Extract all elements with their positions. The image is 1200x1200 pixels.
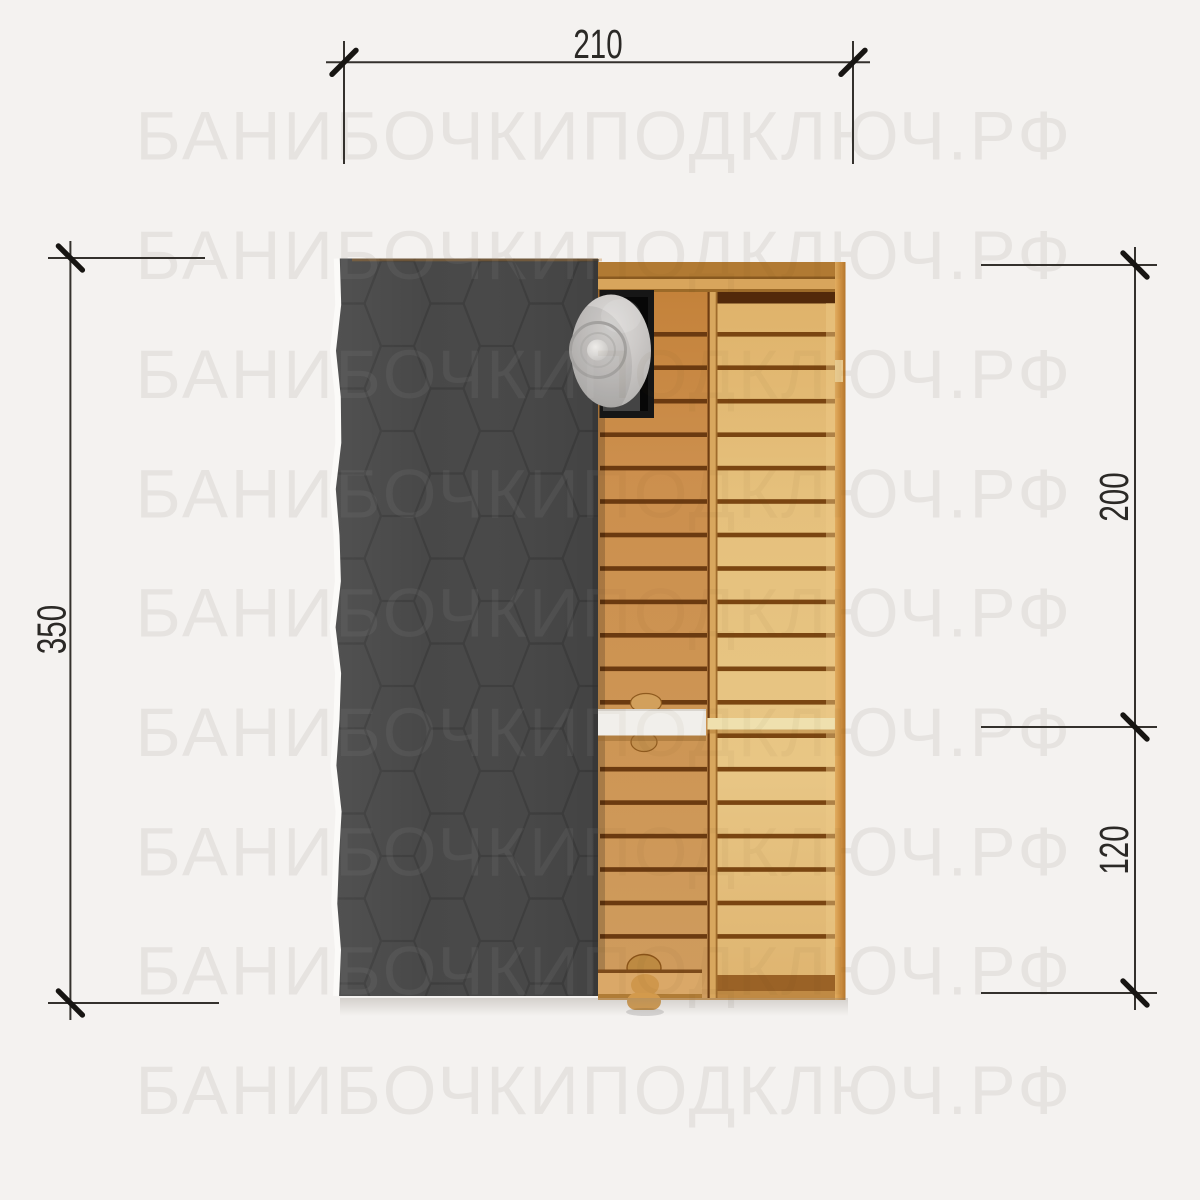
svg-text:БАНИБОЧКИПОДКЛЮЧ.РФ: БАНИБОЧКИПОДКЛЮЧ.РФ: [136, 98, 1073, 175]
svg-text:200: 200: [1091, 472, 1137, 521]
svg-text:120: 120: [1091, 825, 1137, 874]
svg-text:350: 350: [29, 605, 75, 654]
svg-text:210: 210: [573, 21, 622, 67]
svg-text:БАНИБОЧКИПОДКЛЮЧ.РФ: БАНИБОЧКИПОДКЛЮЧ.РФ: [136, 1052, 1073, 1129]
